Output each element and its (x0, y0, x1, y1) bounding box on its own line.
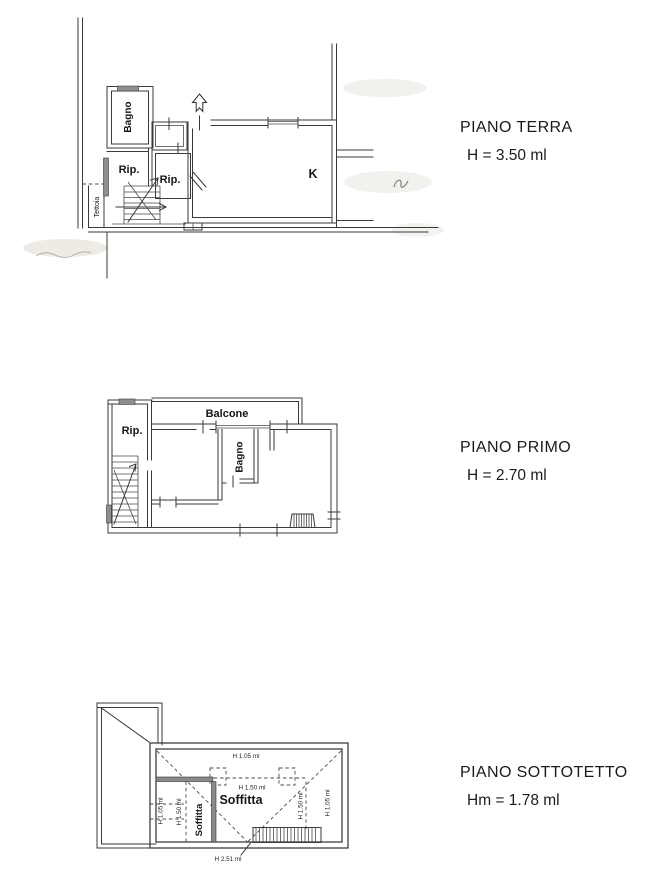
kitchen-room: K (184, 118, 337, 231)
window (104, 158, 109, 196)
floor-plan-piano-terra: Tettoia Bagno Rip. Rip. (20, 8, 450, 290)
room-label-soffitta-main: Soffitta (219, 793, 263, 807)
interior-partition (152, 497, 223, 507)
exterior-walls (108, 400, 340, 536)
site-boundary (89, 228, 439, 279)
floor-height-piano-primo: H = 2.70 ml (467, 467, 571, 485)
vestibule (152, 118, 187, 153)
rip-room-2: Rip. (156, 154, 207, 199)
balcone: Balcone (152, 398, 302, 424)
floor-title-piano-primo: PIANO PRIMO (460, 439, 571, 457)
caption-piano-primo: PIANO PRIMO H = 2.70 ml (460, 439, 571, 485)
dim-label-left-inner: H 1.50 ml (176, 799, 183, 826)
dim-label-left-outer: H 1.05 ml (158, 798, 165, 825)
room-label-kitchen: K (308, 167, 317, 181)
floor-plan-piano-primo: Rip. Balcone Bagno (100, 393, 450, 545)
room-label-balcone: Balcone (206, 408, 249, 420)
room-label-rip: Rip. (122, 425, 143, 437)
steps-hatch (290, 514, 315, 528)
stair-direction-arrow (116, 204, 166, 211)
dim-label-top: H 1.05 ml (233, 753, 260, 760)
floor-height-piano-terra: H = 3.50 ml (467, 147, 573, 165)
dim-label-center: H 1.50 ml (239, 785, 266, 792)
window (119, 399, 135, 405)
stair-diagonal-arrow (128, 178, 158, 222)
scan-artifacts (23, 79, 444, 258)
window (107, 505, 112, 523)
room-label-soffitta-left: Soffitta (194, 803, 205, 836)
stairs (107, 456, 139, 528)
room-label-bagno: Bagno (123, 101, 134, 132)
entrance (193, 94, 207, 130)
room-label-rip-1: Rip. (119, 164, 140, 176)
window (268, 122, 298, 125)
dim-label-right-outer: H 1.05 ml (325, 790, 332, 817)
floor-plan-piano-sottotetto: H 2.51 ml H 1.05 ml H 1.50 ml H 1.05 ml … (90, 695, 362, 880)
entrance-arrow-icon (193, 94, 207, 112)
bagno-room: Bagno (218, 430, 258, 501)
floor-height-piano-sottotetto: Hm = 1.78 ml (467, 792, 628, 810)
bagno-room: Bagno (107, 86, 153, 148)
skylight (279, 768, 295, 785)
dim-label-ridge: H 2.51 ml (215, 856, 242, 863)
room-label-bagno: Bagno (235, 441, 246, 472)
stairs-hatch (253, 828, 321, 843)
rip-room-1: Rip. (104, 148, 153, 196)
room-label-rip-2: Rip. (160, 174, 181, 186)
room-label-tettoia: Tettoia (94, 197, 101, 218)
scanned-floor-plan-sheet: Tettoia Bagno Rip. Rip. (0, 0, 650, 880)
window (118, 86, 139, 91)
caption-piano-terra: PIANO TERRA H = 3.50 ml (460, 119, 573, 165)
dim-label-right-inner: H 1.50 ml (298, 793, 305, 820)
window (216, 426, 270, 429)
ridge-height-leader: H 2.51 ml (215, 843, 251, 863)
floor-title-piano-terra: PIANO TERRA (460, 119, 573, 137)
roof-block (97, 703, 162, 848)
floor-title-piano-sottotetto: PIANO SOTTOTETTO (460, 764, 628, 782)
caption-piano-sottotetto: PIANO SOTTOTETTO Hm = 1.78 ml (460, 764, 628, 810)
